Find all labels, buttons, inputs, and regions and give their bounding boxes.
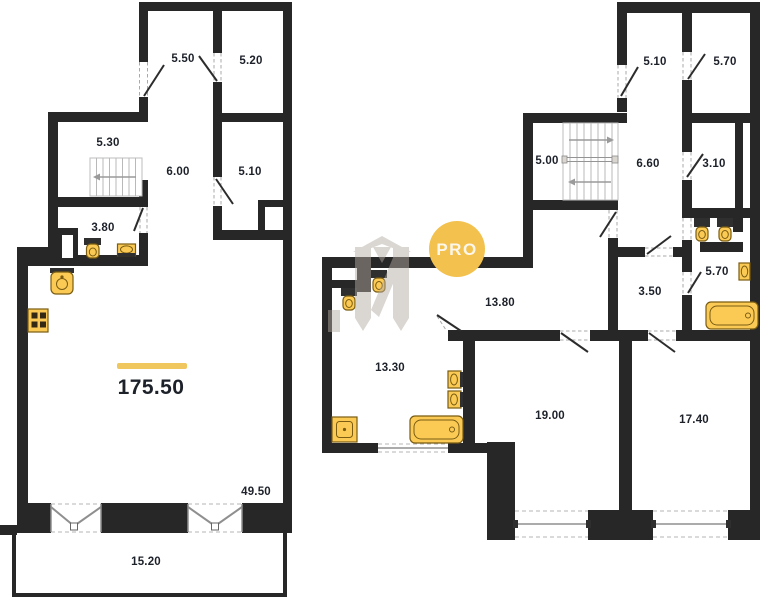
pro-badge: PRO — [429, 221, 485, 277]
door-swing — [683, 272, 701, 295]
label-right-room-5-70: 5.70 — [713, 56, 736, 68]
area-underline — [117, 363, 187, 369]
toilet-icon — [694, 218, 710, 241]
stove-icon — [28, 309, 48, 332]
wc-opening — [683, 218, 691, 240]
label-living-area: 49.50 — [241, 486, 271, 498]
label-total-area: 175.50 — [118, 376, 185, 400]
window — [378, 444, 448, 452]
label-right-room-3-10: 3.10 — [702, 158, 725, 170]
label-balcony-area: 15.20 — [131, 556, 161, 568]
pro-badge-text: PRO — [436, 240, 477, 259]
door-swing — [645, 236, 673, 256]
label-right-room-19-00: 19.00 — [535, 410, 565, 422]
door-swing — [618, 65, 638, 98]
sink-icon — [448, 391, 463, 408]
label-right-room-6-60: 6.60 — [636, 158, 659, 170]
toilet-icon — [341, 288, 357, 310]
sink-icon — [448, 371, 463, 388]
staircase-icon — [562, 123, 618, 200]
label-right-room-17-40: 17.40 — [679, 414, 709, 426]
door-swing — [648, 331, 676, 352]
floor-plan-drawing: PRO — [0, 0, 770, 600]
bathroom-niche — [57, 228, 78, 264]
label-right-room-13-80: 13.80 — [485, 297, 515, 309]
floor-plan-page: PRO 5.50 5.20 5.30 6.00 5.10 3.80 175.50… — [0, 0, 770, 600]
label-right-room-13-30: 13.30 — [375, 362, 405, 374]
door-swing — [199, 53, 221, 82]
door-swing — [683, 52, 705, 80]
balcony-window — [51, 504, 101, 532]
label-left-room-5-10: 5.10 — [238, 166, 261, 178]
staircase-icon — [90, 158, 142, 196]
door-swing — [437, 315, 461, 331]
door-swing — [214, 177, 233, 206]
label-right-bath-5-70: 5.70 — [705, 266, 728, 278]
label-left-room-3-80: 3.80 — [91, 222, 114, 234]
door-swing — [134, 207, 147, 233]
label-right-room-5-10: 5.10 — [643, 56, 666, 68]
toilet-icon — [717, 218, 733, 241]
toilet-icon — [84, 238, 101, 258]
label-left-room-5-50: 5.50 — [171, 53, 194, 65]
bathtub-icon — [706, 302, 758, 329]
walls — [0, 2, 292, 535]
left-floor-plan — [0, 2, 292, 597]
door-swing — [560, 331, 590, 352]
shower-icon — [332, 417, 357, 442]
label-right-room-3-50: 3.50 — [638, 286, 661, 298]
kitchen-sink-icon — [50, 268, 74, 294]
label-right-room-5-00: 5.00 — [535, 155, 558, 167]
door-swing — [140, 62, 165, 97]
label-left-room-6-00: 6.00 — [166, 166, 189, 178]
sink-icon — [118, 244, 136, 257]
door-swing — [683, 152, 703, 180]
window — [651, 511, 731, 537]
label-left-room-5-30: 5.30 — [96, 137, 119, 149]
door-swing — [600, 210, 617, 238]
label-left-room-5-20: 5.20 — [239, 55, 262, 67]
balcony-window — [188, 504, 242, 532]
bathtub-icon — [410, 416, 463, 443]
window — [513, 511, 591, 537]
sink-icon — [739, 263, 750, 280]
